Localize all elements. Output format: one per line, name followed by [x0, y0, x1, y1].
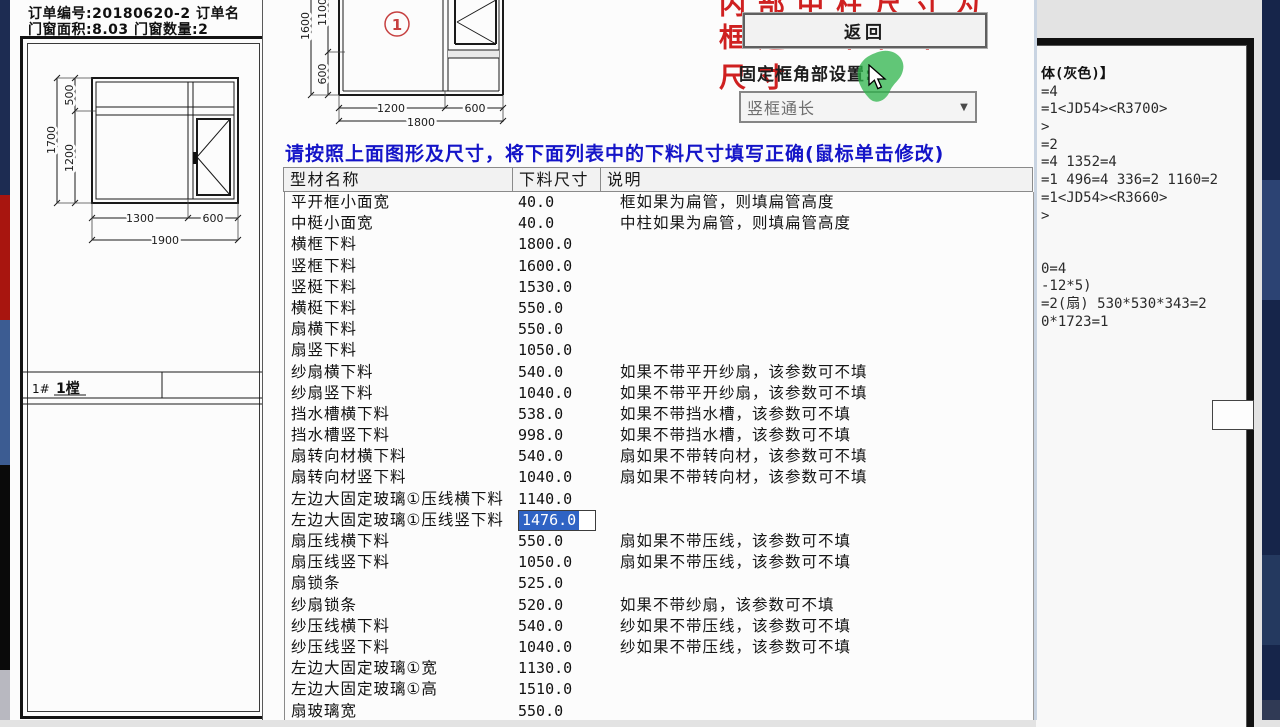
table-row: 纱压线竖下料1040.0纱如果不带压线，该参数可不填: [285, 637, 1033, 658]
row-note: 如果不带挡水槽，该参数可不填: [602, 404, 1033, 425]
cut-size-cell[interactable]: 550.0: [514, 701, 602, 721]
table-row: 左边大固定玻璃①宽1130.0: [285, 658, 1033, 679]
profile-name: 左边大固定玻璃①压线竖下料: [285, 510, 514, 531]
cut-size-cell[interactable]: 550.0: [514, 298, 602, 319]
cut-size-cell[interactable]: 1040.0: [514, 383, 602, 404]
profile-name: 扇压线横下料: [285, 531, 514, 552]
output-line: =2: [1041, 137, 1251, 155]
output-line: =2(扇) 530*530*343=2: [1041, 296, 1251, 314]
table-row: 左边大固定玻璃①压线竖下料1476.0: [285, 510, 1033, 531]
profile-name: 左边大固定玻璃①宽: [285, 658, 514, 679]
cut-size-cell[interactable]: 40.0: [514, 213, 602, 234]
table-row: 扇转向材竖下料1040.0扇如果不带转向材，该参数可不填: [285, 467, 1033, 488]
cutting-output-lines: 体(灰色)】=4=1<JD54><R3700>>=2=4 1352=4=1 49…: [1041, 66, 1251, 331]
row-note: 中柱如果为扁管，则填扁管高度: [602, 213, 1033, 234]
output-line: =4 1352=4: [1041, 154, 1251, 172]
cut-size-cell[interactable]: 1800.0: [514, 234, 602, 255]
profile-name: 横梃下料: [285, 298, 514, 319]
profile-name: 扇横下料: [285, 319, 514, 340]
mouse-cursor-icon: [868, 64, 888, 92]
screen-right-edge-strip: [1262, 0, 1280, 720]
cut-size-table: 型材名称 下料尺寸 说明 平开框小面宽40.0框如果为扁管，则填扁管高度中梃小面…: [284, 167, 1034, 720]
output-line: >: [1041, 208, 1251, 226]
table-header: 型材名称 下料尺寸 说明: [284, 167, 1034, 192]
row-note: [602, 234, 1033, 255]
row-note: 扇如果不带压线，该参数可不填: [602, 531, 1033, 552]
diagram-dim-lower: 600: [316, 64, 329, 85]
cut-size-cell[interactable]: 1040.0: [514, 467, 602, 488]
cut-size-cell[interactable]: 1510.0: [514, 679, 602, 700]
profile-name: 左边大固定玻璃①高: [285, 679, 514, 700]
cut-size-cell[interactable]: 540.0: [514, 362, 602, 383]
table-row: 横框下料1800.0: [285, 234, 1033, 255]
output-line: =1 496=4 336=2 1160=2: [1041, 172, 1251, 190]
profile-name: 平开框小面宽: [285, 192, 514, 213]
cut-size-cell[interactable]: 1040.0: [514, 637, 602, 658]
profile-name: 左边大固定玻璃①压线横下料: [285, 489, 514, 510]
output-line: =1<JD54><R3660>: [1041, 190, 1251, 208]
diagram-dim-bw2: 600: [465, 102, 486, 115]
dim-total-width: 1900: [151, 234, 179, 247]
table-row: 挡水槽横下料538.0如果不带挡水槽，该参数可不填: [285, 404, 1033, 425]
profile-name: 扇锁条: [285, 573, 514, 594]
cut-size-cell[interactable]: 1050.0: [514, 340, 602, 361]
header-note: 说明: [600, 167, 1033, 192]
row-note: 如果不带平开纱扇，该参数可不填: [602, 362, 1033, 383]
header-cut-size: 下料尺寸: [512, 167, 601, 192]
window-elevation-drawing: 1700 500 1200 1300 600 1900 1# 1樘: [20, 36, 266, 720]
table-row: 扇玻璃宽550.0: [285, 701, 1033, 721]
header-profile-name: 型材名称: [283, 167, 513, 192]
cut-size-cell[interactable]: 40.0: [514, 192, 602, 213]
row-note: [602, 510, 1033, 531]
dimension-diagram: 1 1600 1100 600 1200 600 1800: [289, 0, 519, 134]
profile-name: 扇竖下料: [285, 340, 514, 361]
table-row: 竖框下料1600.0: [285, 256, 1033, 277]
cut-size-cell[interactable]: 550.0: [514, 319, 602, 340]
back-button[interactable]: 返回: [743, 13, 987, 48]
profile-name: 纱扇横下料: [285, 362, 514, 383]
output-line: 0*1723=1: [1041, 314, 1251, 332]
diagram-dim-left-total: 1600: [299, 12, 312, 40]
chevron-down-icon[interactable]: ▼: [953, 102, 975, 113]
profile-name: 纱压线竖下料: [285, 637, 514, 658]
row-note: 扇如果不带压线，该参数可不填: [602, 552, 1033, 573]
cut-size-cell[interactable]: 550.0: [514, 531, 602, 552]
profile-name: 中梃小面宽: [285, 213, 514, 234]
row-note: 扇如果不带转向材，该参数可不填: [602, 467, 1033, 488]
table-row: 竖梃下料1530.0: [285, 277, 1033, 298]
table-row: 纱扇横下料540.0如果不带平开纱扇，该参数可不填: [285, 362, 1033, 383]
output-line: [1041, 225, 1251, 243]
table-row: 扇锁条525.0: [285, 573, 1033, 594]
pane-circle-digit: 1: [392, 16, 402, 34]
row-note: [602, 277, 1033, 298]
dim-width-1: 1300: [126, 212, 154, 225]
output-line: [1041, 243, 1251, 261]
profile-name: 扇玻璃宽: [285, 701, 514, 721]
row-note: 如果不带纱扇，该参数可不填: [602, 595, 1033, 616]
sash-handle: [193, 152, 197, 164]
profile-name: 挡水槽竖下料: [285, 425, 514, 446]
row-note: [602, 658, 1033, 679]
cut-size-cell[interactable]: 520.0: [514, 595, 602, 616]
profile-name: 挡水槽横下料: [285, 404, 514, 425]
instruction-text: 请按照上面图形及尺寸，将下面列表中的下料尺寸填写正确(鼠标单击修改): [285, 139, 944, 166]
table-body: 平开框小面宽40.0框如果为扁管，则填扁管高度中梃小面宽40.0中柱如果为扁管，…: [284, 192, 1034, 720]
row-note: 框如果为扁管，则填扁管高度: [602, 192, 1033, 213]
dim-lower-height: 1200: [63, 144, 76, 172]
table-row: 扇压线竖下料1050.0扇如果不带压线，该参数可不填: [285, 552, 1033, 573]
output-corner-box: [1212, 400, 1254, 430]
cut-size-cell[interactable]: 538.0: [514, 404, 602, 425]
table-row: 扇横下料550.0: [285, 319, 1033, 340]
profile-name: 扇转向材横下料: [285, 446, 514, 467]
table-row: 扇竖下料1050.0: [285, 340, 1033, 361]
profile-name: 横框下料: [285, 234, 514, 255]
output-line: 0=4: [1041, 261, 1251, 279]
cut-size-dialog: 1 1600 1100 600 1200 600 1800 内部中柱尺寸为 框边…: [262, 0, 1037, 720]
order-sheet-window: 订单编号:20180620-2 订单名 门窗面积:8.03 门窗数量:2: [10, 0, 266, 720]
row-note: [602, 319, 1033, 340]
cut-size-cell[interactable]: 540.0: [514, 446, 602, 467]
row-note: 扇如果不带转向材，该参数可不填: [602, 446, 1033, 467]
output-line: =4: [1041, 84, 1251, 102]
table-row: 左边大固定玻璃①压线横下料1140.0: [285, 489, 1033, 510]
profile-name: 纱扇竖下料: [285, 383, 514, 404]
row-note: 纱如果不带压线，该参数可不填: [602, 616, 1033, 637]
table-row: 左边大固定玻璃①高1510.0: [285, 679, 1033, 700]
output-line: 体(灰色)】: [1041, 66, 1251, 84]
cut-size-cell[interactable]: 1476.0: [514, 510, 602, 531]
row-note: 纱如果不带压线，该参数可不填: [602, 637, 1033, 658]
output-line: =1<JD54><R3700>: [1041, 101, 1251, 119]
row-note: [602, 298, 1033, 319]
diagram-dim-btotal: 1800: [407, 116, 435, 129]
table-row: 平开框小面宽40.0框如果为扁管，则填扁管高度: [285, 192, 1033, 213]
row-note: [602, 256, 1033, 277]
table-row: 横梃下料550.0: [285, 298, 1033, 319]
row-note: [602, 679, 1033, 700]
table-row: 扇转向材横下料540.0扇如果不带转向材，该参数可不填: [285, 446, 1033, 467]
tally-row-id: 1#: [32, 382, 50, 396]
profile-name: 纱扇锁条: [285, 595, 514, 616]
row-note: 如果不带挡水槽，该参数可不填: [602, 425, 1033, 446]
row-note: 如果不带平开纱扇，该参数可不填: [602, 383, 1033, 404]
cut-size-editbox[interactable]: 1476.0: [518, 510, 596, 531]
cut-size-cell[interactable]: 1130.0: [514, 658, 602, 679]
output-line: >: [1041, 119, 1251, 137]
row-note: [602, 489, 1033, 510]
cut-size-cell[interactable]: 998.0: [514, 425, 602, 446]
screen-left-edge-strip: [0, 0, 10, 720]
cut-size-cell[interactable]: 1600.0: [514, 256, 602, 277]
dim-total-height: 1700: [45, 126, 58, 154]
table-row: 中梃小面宽40.0中柱如果为扁管，则填扁管高度: [285, 213, 1033, 234]
table-row: 挡水槽竖下料998.0如果不带挡水槽，该参数可不填: [285, 425, 1033, 446]
cut-size-selected-value[interactable]: 1476.0: [519, 511, 579, 530]
output-line: -12*5): [1041, 278, 1251, 296]
table-row: 纱压线横下料540.0纱如果不带压线，该参数可不填: [285, 616, 1033, 637]
profile-name: 竖框下料: [285, 256, 514, 277]
profile-name: 竖梃下料: [285, 277, 514, 298]
diagram-dim-bw1: 1200: [377, 102, 405, 115]
profile-name: 扇转向材竖下料: [285, 467, 514, 488]
cutting-output-window: 体(灰色)】=4=1<JD54><R3700>>=2=4 1352=4=1 49…: [1036, 38, 1254, 727]
profile-name: 扇压线竖下料: [285, 552, 514, 573]
diagram-dim-upper: 1100: [316, 0, 329, 26]
dim-width-2: 600: [203, 212, 224, 225]
dropdown-selected-value: 竖框通长: [741, 95, 953, 119]
cut-size-cell[interactable]: 525.0: [514, 573, 602, 594]
cut-size-cell[interactable]: 540.0: [514, 616, 602, 637]
tally-row-qty: 1樘: [56, 380, 80, 397]
cut-size-cell[interactable]: 1530.0: [514, 277, 602, 298]
dim-top-height: 500: [63, 85, 76, 106]
table-row: 纱扇锁条520.0如果不带纱扇，该参数可不填: [285, 595, 1033, 616]
table-row: 纱扇竖下料1040.0如果不带平开纱扇，该参数可不填: [285, 383, 1033, 404]
row-note: [602, 573, 1033, 594]
cut-size-cell[interactable]: 1140.0: [514, 489, 602, 510]
table-row: 扇压线横下料550.0扇如果不带压线，该参数可不填: [285, 531, 1033, 552]
cut-size-cell[interactable]: 1050.0: [514, 552, 602, 573]
row-note: [602, 701, 1033, 721]
row-note: [602, 340, 1033, 361]
profile-name: 纱压线横下料: [285, 616, 514, 637]
